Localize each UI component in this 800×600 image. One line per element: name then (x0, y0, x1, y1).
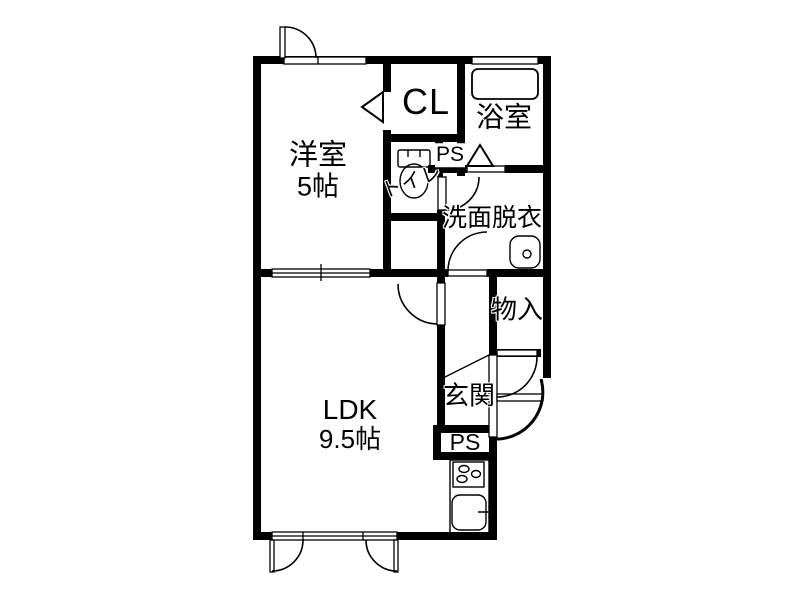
double-door-leaf-right (394, 540, 398, 572)
entrance-threshold (497, 394, 543, 401)
bathroom-window (472, 57, 538, 64)
floorplan-drawing (0, 0, 800, 600)
wall-left (253, 56, 261, 540)
double-door-arc-left (272, 540, 303, 571)
balcony-door-opening (284, 57, 366, 64)
ldk-door-arc (398, 284, 437, 324)
balcony-door-leaf (280, 27, 285, 58)
bathtub-icon (472, 69, 538, 99)
washbasin-drain (523, 250, 531, 258)
label-closet: CL (402, 82, 450, 122)
wall-divider-west (253, 269, 272, 277)
storage-doorway (497, 350, 537, 356)
wall-ps-lower-left (433, 425, 441, 460)
label-bathroom: 浴室 (476, 101, 532, 132)
label-washroom: 洗面脱衣 (442, 204, 542, 232)
storage-door-arc (497, 357, 537, 397)
entrance-door-arc (494, 379, 543, 439)
ldk-doorway (437, 283, 445, 325)
closet-door-triangle (362, 92, 383, 122)
washroom-doorway (448, 270, 487, 276)
western-room-size: 5帖 (289, 172, 347, 202)
label-pipe-space-lower: PS (450, 430, 481, 456)
western-room-name: 洋室 (289, 140, 347, 172)
double-door-leaf-left (270, 540, 274, 572)
wall-westernroom-right-lower (383, 130, 391, 277)
bathroom-door-triangle (467, 145, 493, 166)
ldk-size: 9.5帖 (319, 425, 381, 454)
washroom-door-arc (448, 232, 487, 271)
balcony-door-arc (285, 27, 316, 58)
wall-divider-mid (370, 269, 448, 277)
stove-burner-2 (472, 471, 481, 478)
wall-westernroom-right-upper (383, 56, 391, 92)
wall-closet-bottom (383, 134, 465, 142)
label-pipe-space-upper: PS (435, 143, 465, 167)
label-entrance: 玄関 (443, 381, 495, 410)
washbasin-icon (510, 236, 540, 268)
stove-icon (453, 462, 484, 487)
stove-burner-3 (457, 476, 467, 483)
label-storage: 物入 (491, 295, 543, 324)
wall-kitchen-right (489, 425, 497, 540)
label-ldk: LDK 9.5帖 (319, 394, 381, 454)
label-western-room: 洋室 5帖 (289, 140, 347, 203)
ldk-name: LDK (319, 394, 381, 425)
floorplan: 洋室 5帖 CL 浴室 PS トイレ 洗面脱衣 物入 玄関 PS LDK 9.5… (0, 0, 800, 600)
stove-burner-1 (459, 466, 469, 473)
entrance-step-line (445, 355, 489, 377)
wall-washroom-top-right (505, 165, 543, 173)
wall-right (543, 56, 551, 378)
double-door-arc-right (366, 540, 397, 571)
wall-toilet-bottom (390, 213, 443, 221)
